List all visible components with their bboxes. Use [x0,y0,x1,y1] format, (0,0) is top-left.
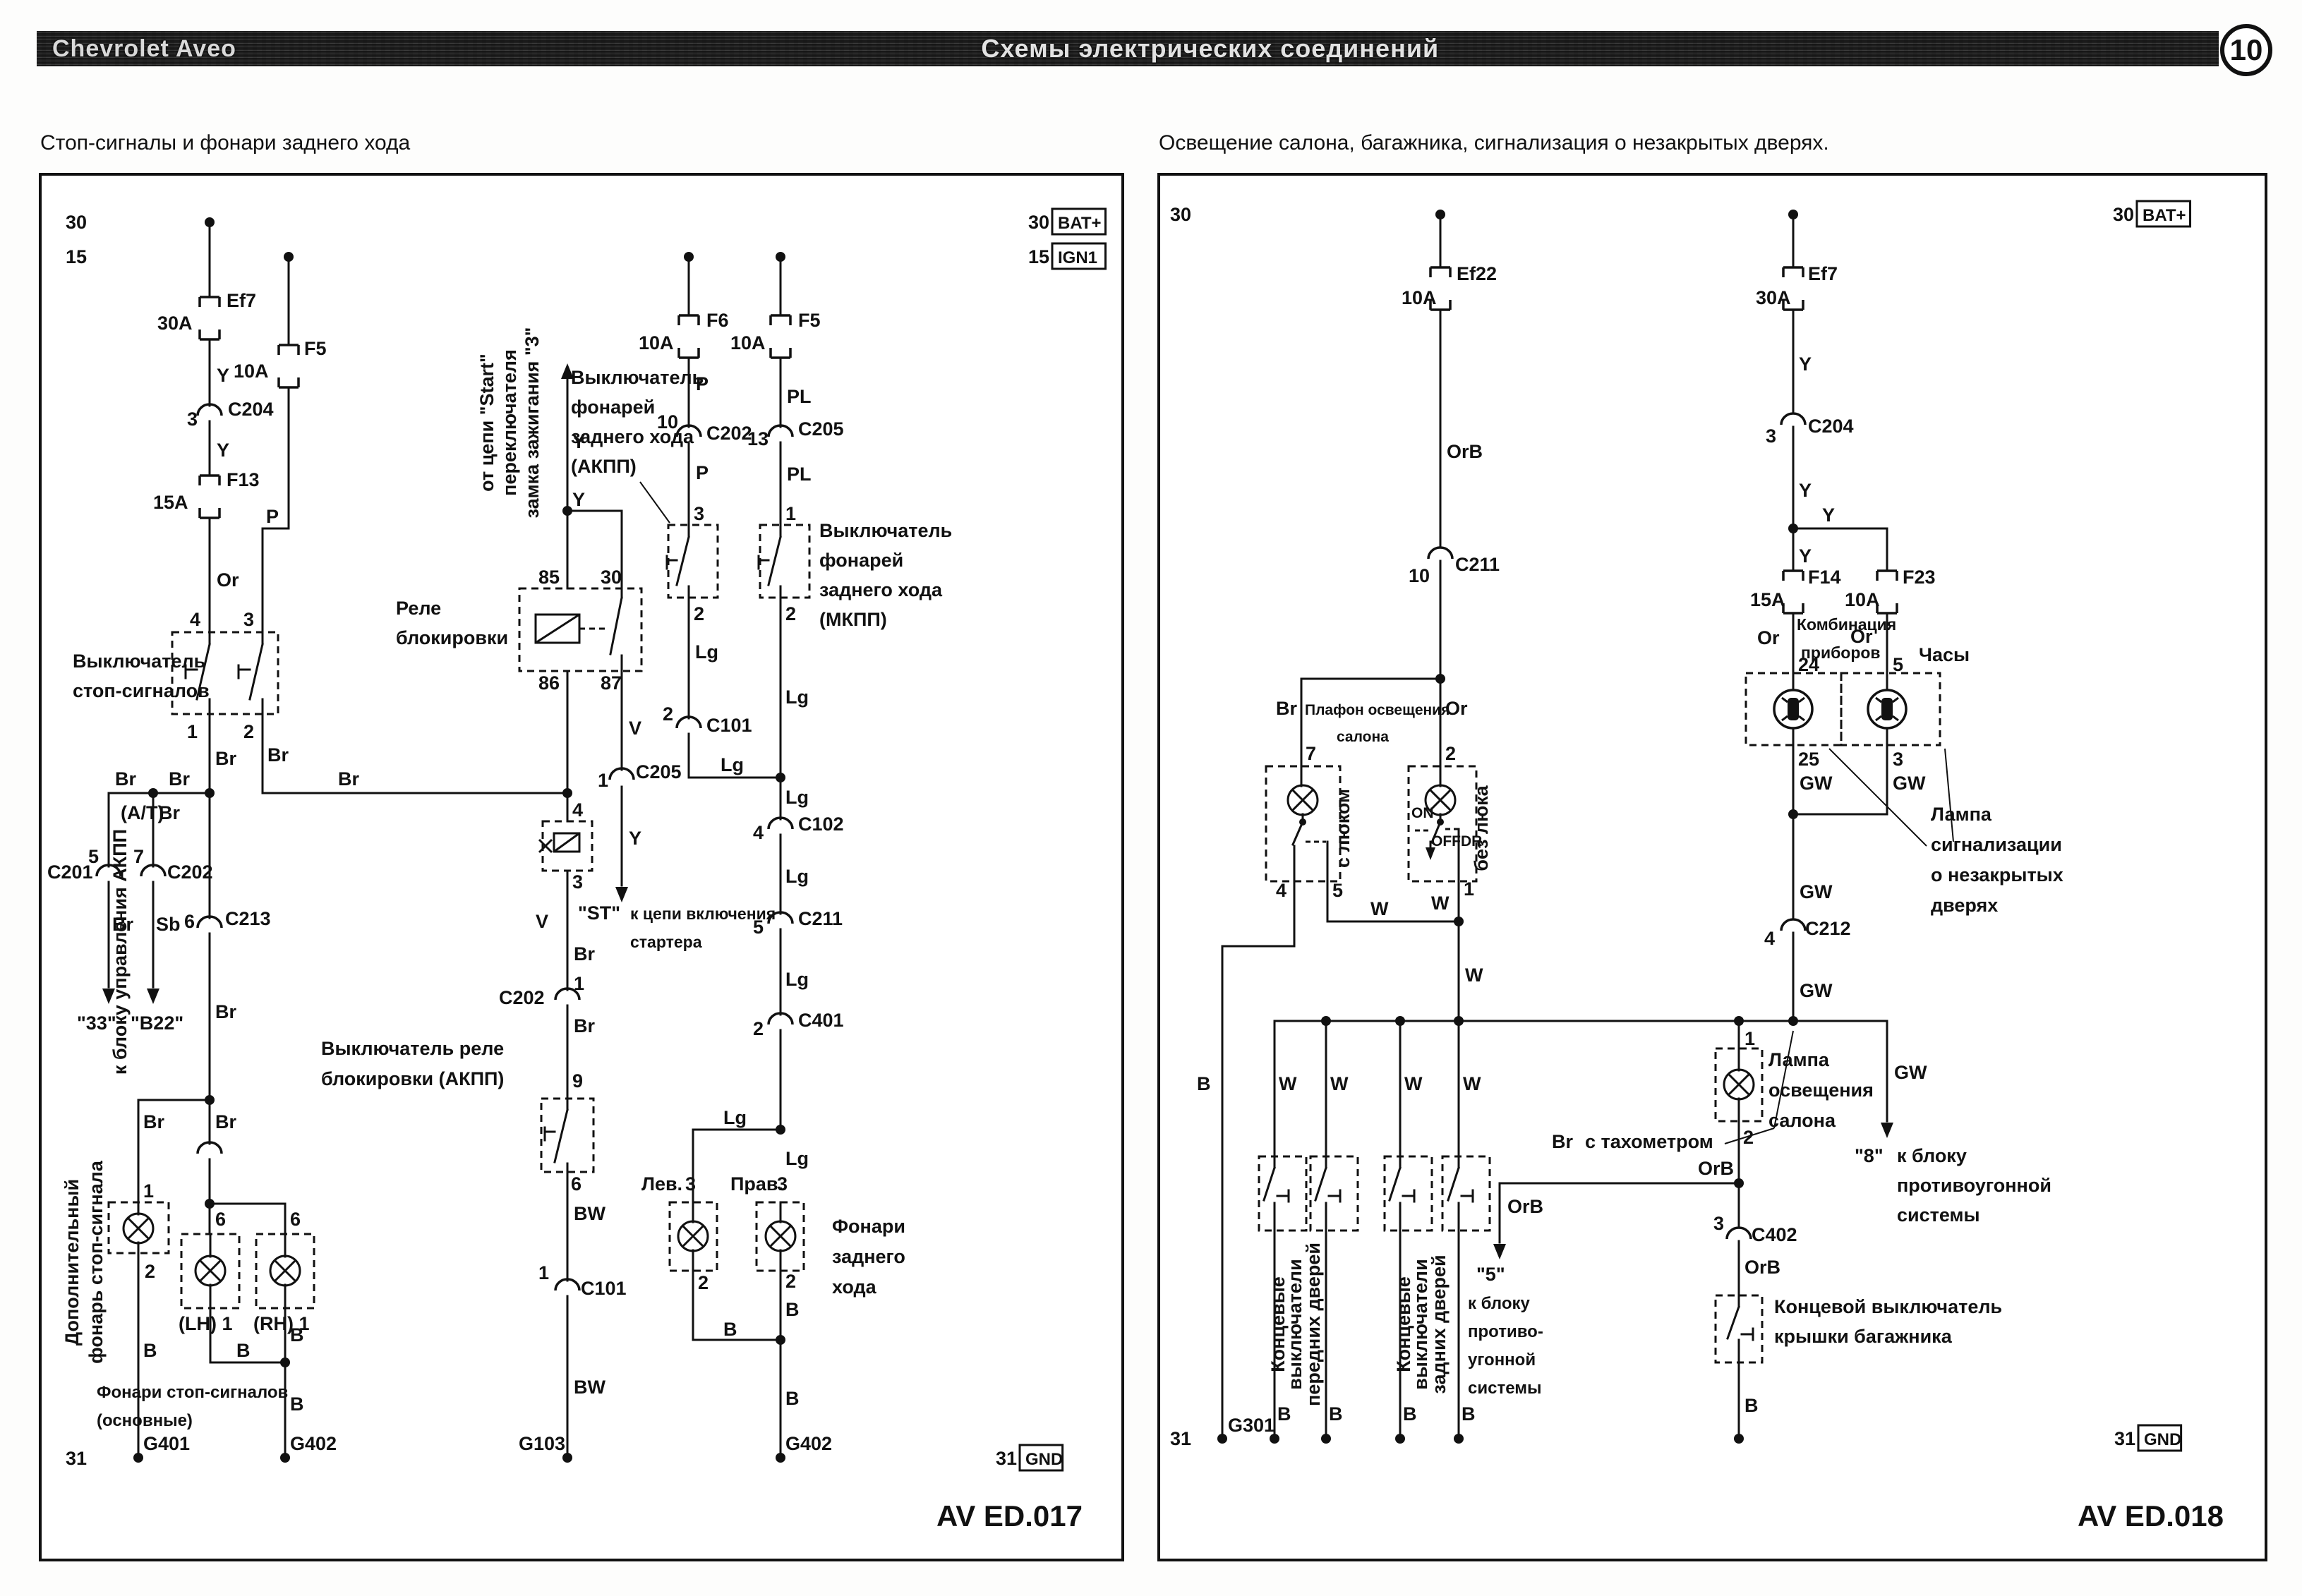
component-label: Выключатель [571,367,704,388]
fuse-name: F23 [1903,567,1936,588]
wire-color: Br [267,744,289,766]
wire-color: B [1462,1403,1476,1425]
arrow-down-icon [1493,1244,1506,1259]
bus-31-label: 31 [996,1448,1017,1469]
pin-number: 30 [601,567,622,588]
wire-color: Y [217,440,229,461]
circuit-ref: "5" [1476,1264,1505,1285]
wire-color: Br [159,802,180,823]
bus-31-label: 31 [66,1448,87,1469]
wire-color: B [290,1324,304,1346]
header-band: Chevrolet Aveo Схемы электрических соеди… [37,31,2219,66]
pin-number: 85 [538,567,560,588]
fuse-name: Ef7 [1808,263,1838,284]
pin-number: 87 [601,672,622,694]
wire-color: Br [115,768,136,790]
wire-color: W [1465,965,1483,986]
pin-number: 1 [574,973,584,994]
connector-name: C401 [798,1010,844,1031]
component-label: дверях [1931,895,1998,916]
connector-name: C402 [1752,1224,1797,1245]
brand-title: Chevrolet Aveo [52,35,236,63]
pin-number: 4 [572,799,583,821]
dome-lamp-icon [1288,785,1318,815]
component-boxes [1259,673,1940,1362]
fuse-rating: 10A [1402,287,1437,308]
connector-name: C212 [1805,918,1851,939]
component-label: Лампа [1931,804,1992,825]
component-label: Концевой выключатель [1774,1296,2002,1317]
fuse-rating: 15A [153,492,188,513]
pin-number: 86 [538,672,560,694]
bus-30-label: 30 [1170,204,1191,225]
component-label: блокировки (АКПП) [321,1068,504,1089]
wire-color: W [1404,1073,1423,1094]
wire-color: OrB [1507,1196,1543,1217]
wire-color: Lg [785,866,809,887]
connector-name: C204 [1808,416,1854,437]
component-label: освещения [1768,1080,1874,1101]
wire-color: GW [1893,773,1926,794]
pin-number: 5 [88,846,99,867]
wire-color: Br [215,748,236,769]
scanned-manual-page: Chevrolet Aveo Схемы электрических соеди… [0,0,2302,1596]
bus-30-label: 30 [1028,212,1049,233]
reverse-lamp-rh-icon [766,1221,795,1251]
fuse-f6-icon [679,315,699,358]
pin-number: 2 [753,1018,764,1039]
side-label: Лев. [641,1173,682,1195]
high-stop-lamp-icon [123,1214,153,1243]
pin-number: 4 [190,609,200,630]
ground-name: G103 [519,1433,565,1454]
fuse-f13-icon [200,476,219,518]
pin-number: 3 [1713,1213,1724,1234]
wire-color: Or [1445,698,1468,719]
fuse-name: F13 [227,469,260,490]
component-label: заднего хода [571,426,694,447]
pin-number: 3 [1766,425,1776,447]
wire-color: GW [1800,773,1833,794]
source-note: переключателя [499,349,520,496]
pin-number: 6 [184,911,195,932]
page-title: Схемы электрических соединений [981,34,1439,64]
connector-name: C211 [798,908,843,929]
component-label: о незакрытых [1931,864,2063,885]
pin-number: 5 [1332,880,1343,901]
left-diagram: 3030BAT+1515IGN13131GNDAV ED.017Ef730AY3… [42,176,1121,1559]
component-label: Фонари стоп-сигналов [97,1383,288,1402]
wire-color: W [1279,1073,1297,1094]
pin-number: 1 [538,1262,549,1283]
page-number-badge: 10 [2220,24,2272,76]
wire-color: Br [215,1111,236,1132]
fuse-f5b-icon [771,315,790,358]
pin-number: 24 [1798,654,1819,675]
wire-color: Y [1822,504,1835,526]
destination-note: к блоку [1468,1294,1531,1313]
connector-name: C205 [798,418,844,440]
pin-number: 3 [694,503,704,524]
component-label: заднего хода [819,579,943,600]
fuse-name: F5 [798,310,821,331]
source-note: замка зажигания "3" [522,327,543,519]
wire-color: OrB [1744,1257,1780,1278]
component-label: Реле [396,598,441,619]
wire-color: Y [1799,353,1812,375]
bus-30-label: 30 [66,212,87,233]
wire-color: Y [1799,545,1812,567]
wire-color: Y [217,365,229,386]
pin-number: 1 [1744,1028,1755,1049]
circuit-ref: "ST" [578,902,620,924]
fuse-name: Ef22 [1457,263,1497,284]
pin-number: 7 [133,846,144,867]
destination-note: противоугонной [1897,1175,2051,1196]
component-label: Часы [1919,644,1970,665]
variant-label: без люка [1471,785,1492,871]
circuit-ref: "33" [77,1012,116,1034]
pin-number: 2 [785,603,796,624]
wire-color: Lg [785,687,809,708]
pin-number: 7 [1306,743,1316,764]
wire-color: Lg [721,754,744,775]
component-label: сигнализации [1931,834,2062,855]
ground-name: G401 [143,1433,190,1454]
arrow-down-icon [147,989,159,1004]
wire-color: OrB [1698,1158,1734,1179]
component-label: Комбинация [1797,615,1896,634]
pin-number: 13 [747,428,769,449]
wire-color: B [1197,1073,1211,1094]
fuse-rating: 30A [157,313,193,334]
wire-color: GW [1894,1062,1927,1083]
destination-note: системы [1897,1204,1980,1226]
bus-gnd-tag: GND [2144,1430,2181,1449]
component-label: Фонари [832,1216,905,1237]
component-label: салона [1337,729,1389,745]
component-label: Лампа [1768,1049,1830,1070]
fuse-f5-icon [279,345,299,387]
fuse-f14-icon [1783,571,1803,613]
wire-color: Br [1276,698,1297,719]
connector-name: C211 [1455,554,1500,575]
wire-color: B [1744,1395,1759,1416]
wire-color: W [1431,893,1450,914]
pin-number: 4 [1276,880,1286,901]
wire-color: Y [1799,480,1812,501]
diagram-code: AV ED.017 [936,1499,1083,1532]
wire-color: PL [787,386,812,407]
switch-position: OFF [1431,833,1461,850]
connector-name: C205 [636,761,682,782]
pin-number: 2 [1445,743,1456,764]
wire-color: Lg [695,641,718,663]
wire-color: B [785,1299,800,1320]
component-label: (МКПП) [819,609,887,630]
wire-color: P [266,506,279,527]
wire-color: Or [1757,627,1780,648]
bus-bat-tag: BAT+ [2143,206,2186,225]
pin-number: 5 [1893,654,1903,675]
wire-color: Lg [785,1148,809,1169]
circuit-ref: "8" [1855,1145,1884,1166]
component-label: фонарь стоп-сигнала [85,1160,107,1364]
connector-name: C101 [581,1278,627,1299]
courtesy-lamp-icon [1724,1070,1754,1099]
pin-number: 6 [571,1173,581,1195]
ground-name: G402 [785,1433,832,1454]
wire-color: Br [143,1111,164,1132]
stop-lamp-lh-icon [195,1256,225,1286]
bus-31-label: 31 [1170,1428,1191,1449]
component-label: Дополнительный [61,1179,83,1346]
wire-color: Y [572,489,585,510]
pin-number: 3 [572,871,583,893]
wire-color: V [536,911,548,932]
component-label: крышки багажника [1774,1326,1953,1347]
pin-number: 2 [698,1272,709,1293]
connector-name: C102 [798,814,844,835]
destination-note: к блоку [1897,1145,1967,1166]
pin-number: 1 [1464,878,1474,900]
component-label: (АКПП) [571,456,637,477]
bus-bat-tag: BAT+ [1058,214,1102,233]
component-label: салона [1768,1110,1836,1131]
fuse-name: Ef7 [227,290,256,311]
door-ajar-indicator-icon [1774,690,1812,728]
fuse-name: F5 [304,338,327,359]
fuse-name: F6 [706,310,729,331]
wire-color: B [785,1388,800,1409]
circuit-ref: "B22" [131,1012,183,1034]
ground-name: G402 [290,1433,337,1454]
variant-label: с тахометром [1585,1131,1713,1152]
component-label: Выключатель реле [321,1038,504,1059]
fuse-f23-icon [1877,571,1897,613]
side-label: Прав. [730,1173,783,1195]
pin-number: 4 [753,822,764,843]
right-diagram-title: Освещение салона, багажника, сигнализаци… [1159,131,1829,155]
connector-name: C204 [228,399,274,420]
pin-number: 1 [143,1180,154,1202]
pin-number: 1 [187,721,198,742]
destination-note: угонной [1468,1350,1536,1370]
connector-name: C202 [499,987,545,1008]
wire-color: B [143,1340,157,1361]
reverse-lamp-lh-icon [678,1221,708,1251]
fuse-rating: 10A [1845,589,1880,610]
fuse-rating: 10A [730,332,766,353]
wire-color: P [696,462,709,483]
pin-number: 2 [243,721,254,742]
pin-number: 6 [290,1209,301,1230]
wire-color: Lg [785,787,809,808]
fuse-rating: 15A [1750,589,1785,610]
pin-number: 1 [785,503,796,524]
arrow-down-icon [1881,1123,1893,1138]
arrow-down-icon [615,887,628,902]
wire-color: Lg [723,1107,747,1128]
wire-color: B [1329,1403,1343,1425]
pin-number: 2 [1743,1127,1754,1148]
wire-color: Br [338,768,359,790]
stop-lamp-rh-icon [270,1256,300,1286]
wire-color: Br [1552,1131,1573,1152]
wire-color: BW [574,1203,605,1224]
wire-color: Br [574,1015,595,1036]
wire-color: Br [169,768,190,790]
wire-color: GW [1800,980,1833,1001]
wire-color: Sb [156,914,181,935]
bus-gnd-tag: GND [1025,1450,1063,1469]
component-label: Выключатель [73,651,205,672]
bus-31-label: 31 [2114,1428,2135,1449]
bus-15-label: 15 [66,246,87,267]
wire-color: BW [574,1377,605,1398]
fuse-rating: 10A [639,332,674,353]
switch-position: ON [1411,805,1434,821]
pin-number: 3 [685,1173,696,1195]
wire-color: W [1370,898,1389,919]
wire-color: B [723,1319,737,1340]
wire-color: Br [574,943,595,965]
wire-color: Or [217,569,239,591]
wire-color: B [1277,1403,1291,1425]
component-label: фонарей [571,397,655,418]
component-label: хода [832,1276,877,1298]
destination-note: к блоку управления АКПП [109,829,131,1075]
connector-name: C201 [47,862,93,883]
bus-ign1-tag: IGN1 [1058,248,1097,267]
component-label: (основные) [97,1411,193,1430]
wire-color: Br [215,1001,236,1022]
pin-number: 9 [572,1070,583,1092]
right-diagram: 3030BAT+3131GNDAV ED.018Ef2210AOrB10C211… [1160,176,2265,1559]
connector-name: C202 [706,423,752,444]
pin-number: 2 [145,1261,155,1282]
connector-name: C213 [225,908,271,929]
destination-note: противо- [1468,1322,1543,1341]
pin-number: 1 [598,770,608,791]
pin-number: (LH) 1 [179,1313,233,1334]
bus-30-label: 30 [2113,204,2134,225]
component-label: фонарей [819,550,903,571]
bus-15-label: 15 [1028,246,1049,267]
destination-note: системы [1468,1379,1541,1398]
left-diagram-title: Стоп-сигналы и фонари заднего хода [40,131,410,155]
wire-color: W [1330,1073,1349,1094]
pin-number: 2 [663,703,673,725]
door-ajar-indicator-icon [1868,690,1906,728]
switch-position: DR [1461,833,1482,850]
component-label: заднего [832,1246,905,1267]
variant-label: (А/Т) [121,802,164,823]
right-diagram-panel: 3030BAT+3131GNDAV ED.018Ef2210AOrB10C211… [1157,173,2267,1561]
component-label: стоп-сигналов [73,680,210,701]
wire-color: PL [787,464,812,485]
component-label: Плафон освещения [1305,702,1450,718]
component-label: задних дверей [1428,1255,1450,1394]
wire-color: B [236,1340,251,1361]
connector-name: C101 [706,715,752,736]
pin-number: 10 [1409,565,1430,586]
wire-color: GW [1800,881,1833,902]
wire-color: Lg [785,969,809,990]
wire-color: OrB [1447,441,1483,462]
pin-number: 3 [187,409,198,430]
pin-number: 6 [215,1209,226,1230]
wire-color: B [1403,1403,1417,1425]
diagram-code: AV ED.018 [2078,1499,2224,1532]
pin-number: 2 [694,603,704,624]
fuse-rating: 10A [234,361,269,382]
fuse-name: F14 [1808,567,1841,588]
source-note: от цепи "Start" [476,353,498,492]
pin-number: 2 [785,1271,796,1292]
component-label: передних дверей [1303,1243,1324,1406]
pin-number: 3 [243,609,254,630]
destination-note: стартера [630,933,702,951]
pin-number: 3 [1893,749,1903,770]
fuse-ef7-icon [200,297,219,339]
pin-number: 3 [777,1173,788,1195]
wire-color: V [629,718,641,739]
pin-number: 25 [1798,749,1819,770]
ground-name: G301 [1228,1415,1274,1436]
wire-color: Y [629,828,641,849]
component-label: Выключатель [819,520,952,541]
pin-number: 5 [753,917,764,938]
pin-number: 4 [1764,928,1775,949]
leader-lines [640,482,670,523]
fuse-rating: 30A [1756,287,1791,308]
variant-label: с люком [1332,789,1354,868]
component-label: блокировки [396,627,508,648]
left-diagram-panel: 3030BAT+1515IGN13131GNDAV ED.017Ef730AY3… [39,173,1124,1561]
wire-color: W [1463,1073,1481,1094]
connector-name: C202 [167,862,213,883]
wire-color: B [290,1394,304,1415]
